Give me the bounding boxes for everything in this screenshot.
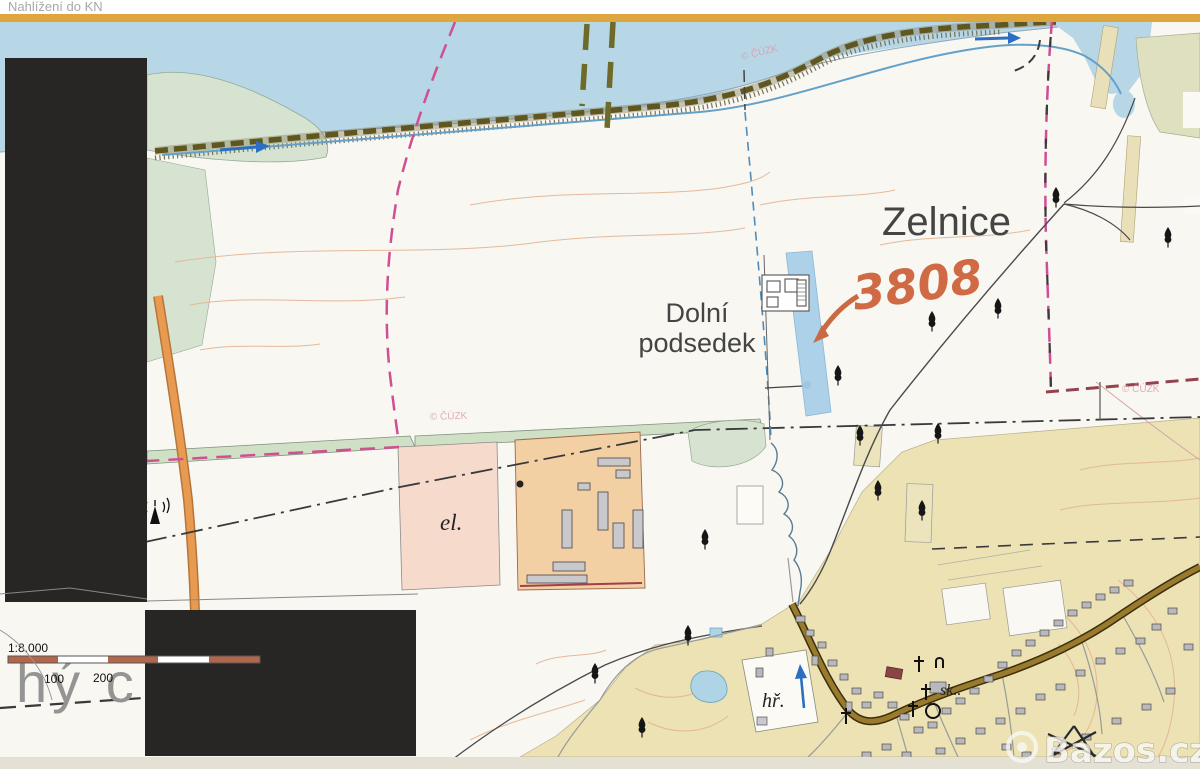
map-border-bar (0, 14, 1200, 22)
watermark-text: Bazos.cz (1044, 731, 1200, 769)
redaction-box-left (5, 58, 147, 602)
locality-label-line1: Dolní (665, 298, 729, 328)
map-canvas: Zelnice Dolní podsedek el. hř. sk.. © ČÚ… (0, 0, 1200, 769)
school-label: sk.. (940, 682, 961, 699)
page-title: Nahlížení do KN (8, 0, 103, 14)
copyright-note-1: © ČÚZK (430, 409, 468, 423)
scale-tick-200: 200 (93, 671, 113, 685)
browser-header-strip (0, 0, 1200, 14)
pond (691, 671, 727, 702)
locality-label-line2: podsedek (638, 328, 756, 358)
place-name-label: Zelnice (882, 200, 1011, 244)
redaction-box-bottom (145, 610, 416, 756)
playground-label: hř. (762, 690, 785, 712)
substation-area (398, 432, 645, 590)
scale-ratio-label: 1:8.000 (8, 641, 48, 655)
substation-label: el. (440, 510, 462, 535)
farm-building (762, 275, 809, 311)
copyright-note-3: © ČÚZK (1122, 382, 1160, 395)
scanned-cadastral-map: Zelnice Dolní podsedek el. hř. sk.. © ČÚ… (0, 0, 1200, 769)
paper-edge (0, 757, 1200, 769)
